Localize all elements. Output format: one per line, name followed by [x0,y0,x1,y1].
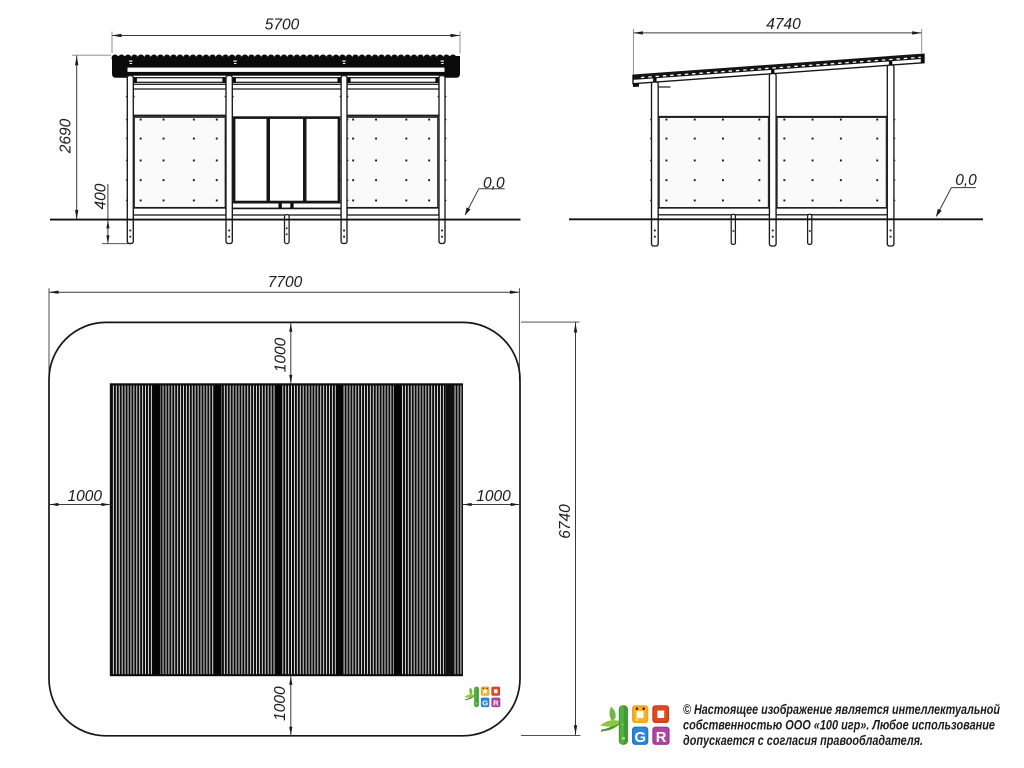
svg-text:R: R [656,730,667,746]
svg-text:© Настоящее изображение являет: © Настоящее изображение является интелле… [683,702,1000,717]
svg-text:2690: 2690 [58,118,75,154]
svg-text:4740: 4740 [766,16,801,33]
svg-text:допускается с согласия правооб: допускается с согласия правообладателя. [683,733,923,748]
svg-text:400: 400 [92,183,109,209]
svg-text:5700: 5700 [265,17,300,34]
svg-text:0,0: 0,0 [955,172,977,189]
svg-text:G: G [482,698,488,707]
svg-text:1000: 1000 [272,337,289,372]
svg-text:1000: 1000 [272,686,289,721]
svg-text:G: G [635,730,647,746]
svg-text:1000: 1000 [68,488,103,505]
svg-text:R: R [493,698,499,707]
svg-text:7700: 7700 [268,274,303,291]
svg-text:0,0: 0,0 [483,175,505,192]
svg-text:собственностью ООО «100 игр».: собственностью ООО «100 игр». Любое испо… [683,718,995,733]
svg-text:1000: 1000 [476,488,511,505]
svg-text:6740: 6740 [557,504,574,539]
